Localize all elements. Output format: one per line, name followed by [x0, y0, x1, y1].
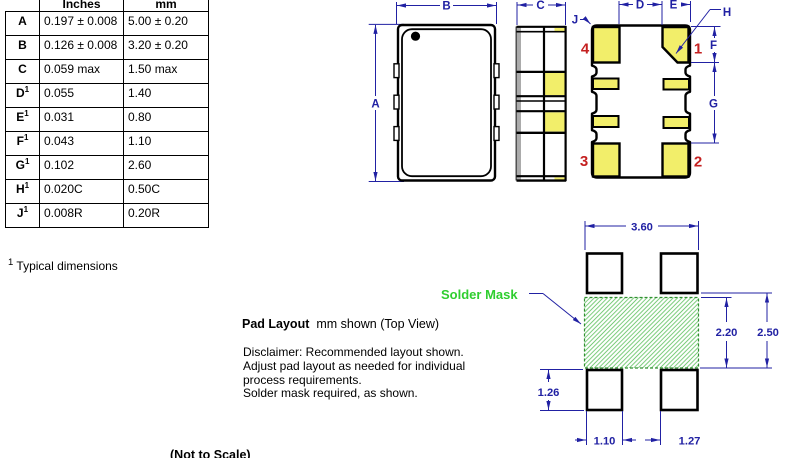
svg-text:4: 4 [581, 41, 590, 58]
svg-text:A: A [371, 99, 379, 111]
svg-text:C: C [536, 0, 544, 12]
svg-text:1.27: 1.27 [679, 436, 701, 448]
svg-text:1: 1 [694, 41, 702, 58]
svg-text:G: G [709, 99, 718, 111]
svg-text:2.50: 2.50 [757, 327, 779, 339]
svg-text:D: D [636, 0, 644, 12]
svg-text:2.20: 2.20 [716, 327, 738, 339]
svg-text:3.60: 3.60 [631, 222, 653, 234]
svg-text:3: 3 [580, 153, 588, 170]
svg-text:2: 2 [694, 154, 702, 171]
svg-text:J: J [572, 15, 578, 27]
svg-text:E: E [670, 0, 678, 12]
svg-text:1.10: 1.10 [594, 436, 616, 448]
svg-text:H: H [723, 7, 731, 19]
svg-text:B: B [442, 1, 450, 13]
svg-text:Solder Mask: Solder Mask [441, 287, 518, 302]
svg-text:F: F [710, 40, 717, 52]
svg-text:1.26: 1.26 [538, 387, 560, 399]
